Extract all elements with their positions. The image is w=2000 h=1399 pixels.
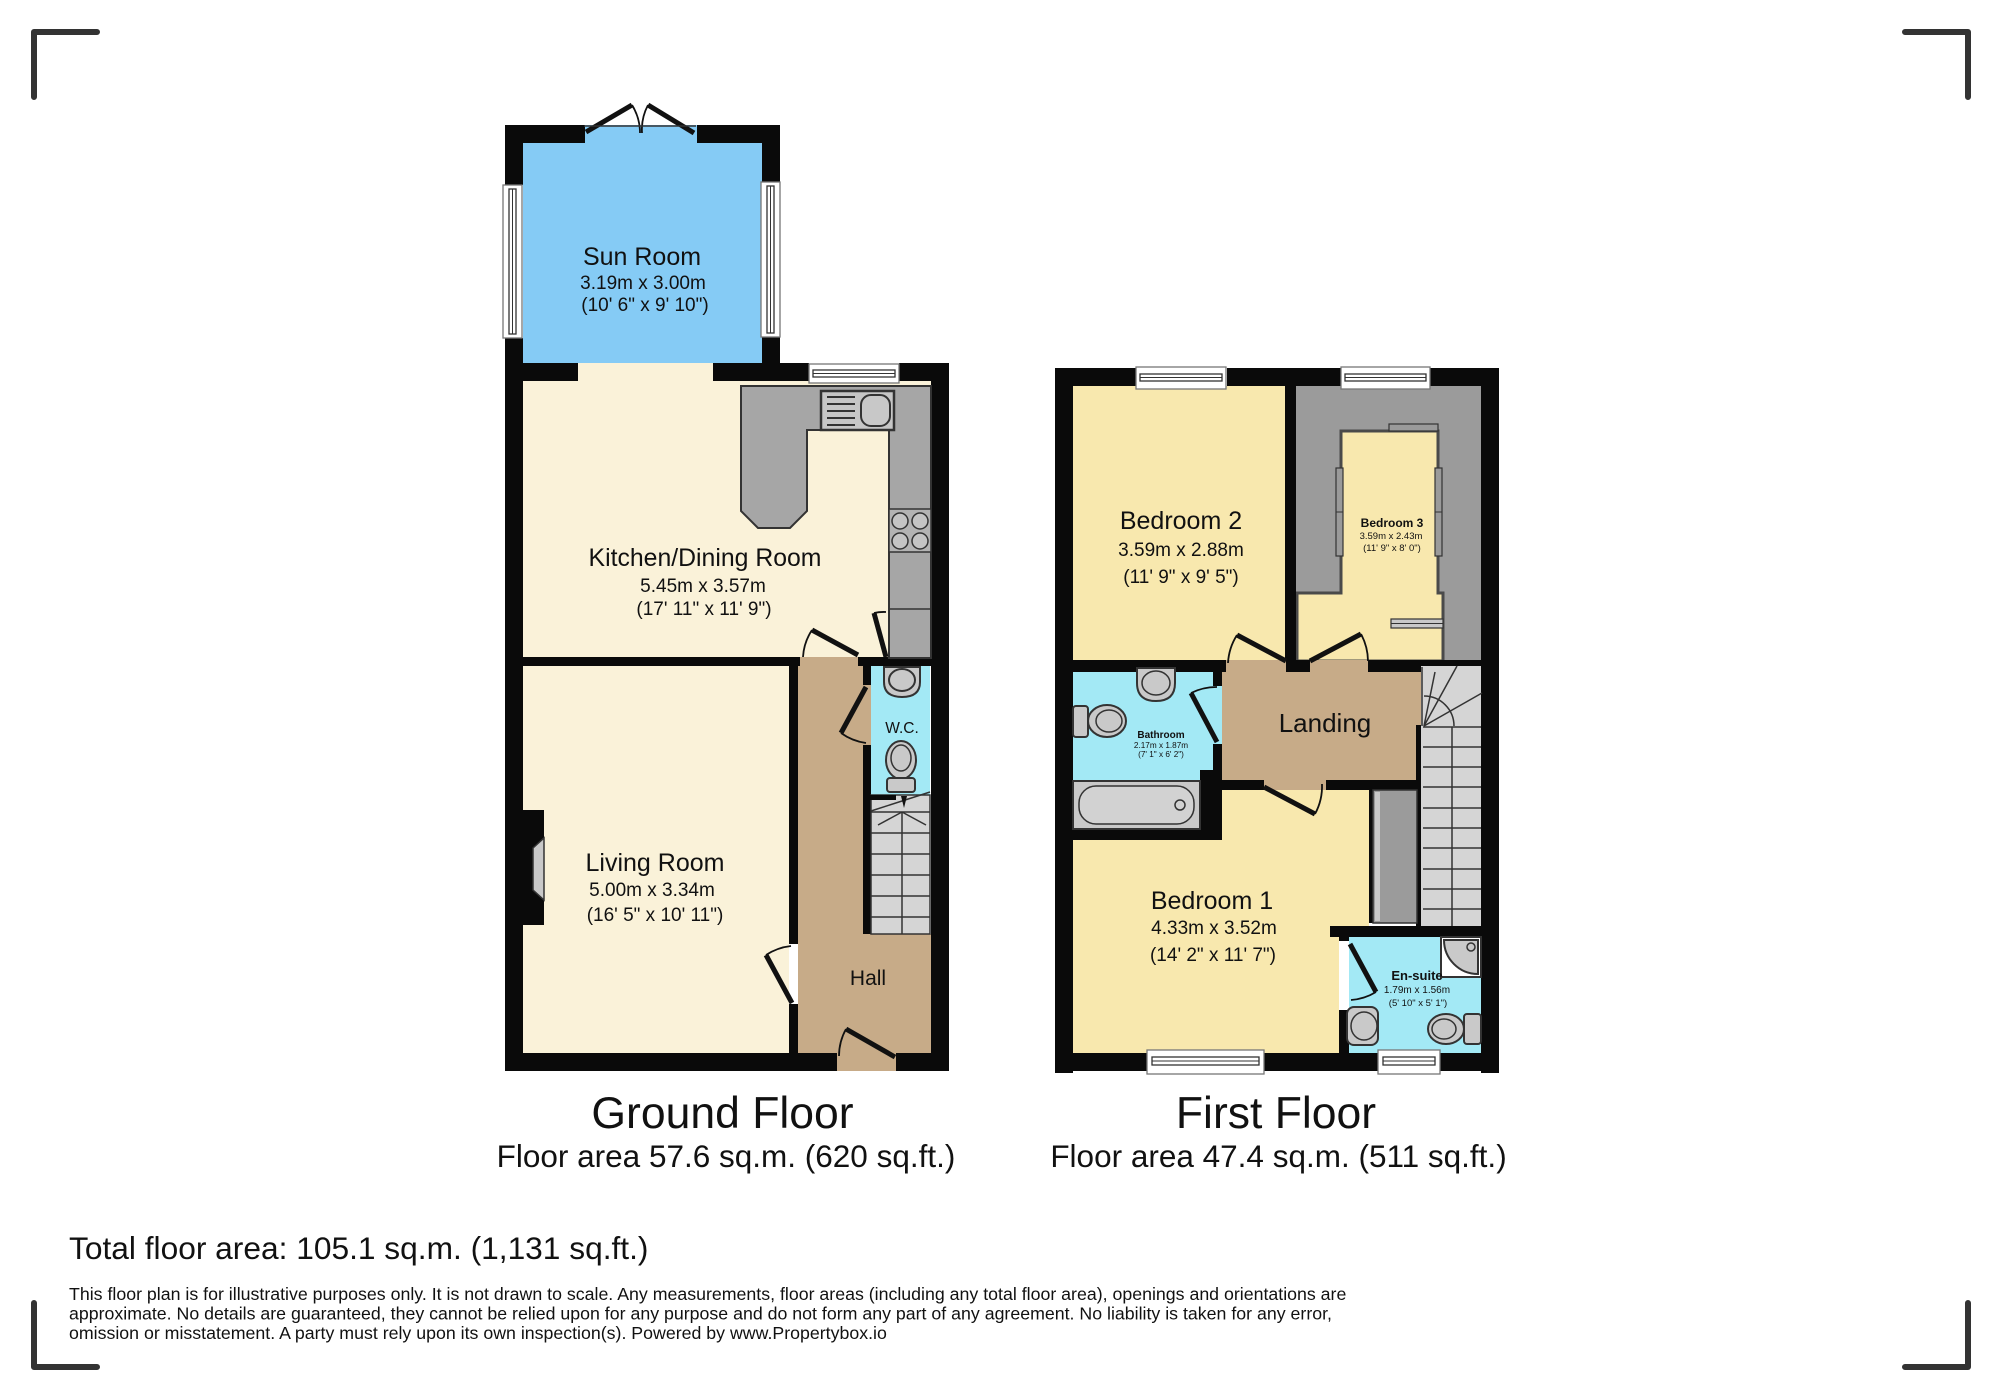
svg-text:Hall: Hall xyxy=(850,967,886,990)
svg-text:5.45m x 3.57m: 5.45m x 3.57m xyxy=(640,576,766,597)
svg-text:(5' 10" x 5' 1"): (5' 10" x 5' 1") xyxy=(1389,998,1447,1009)
svg-text:5.00m x 3.34m: 5.00m x 3.34m xyxy=(589,880,715,901)
svg-text:Bedroom 1: Bedroom 1 xyxy=(1151,887,1273,915)
svg-text:Bedroom 2: Bedroom 2 xyxy=(1120,507,1242,535)
svg-text:2.17m x 1.87m: 2.17m x 1.87m xyxy=(1134,741,1188,750)
svg-text:Living Room: Living Room xyxy=(586,849,725,877)
svg-text:(7' 1" x 6' 2"): (7' 1" x 6' 2") xyxy=(1138,750,1184,759)
svg-text:(11' 9" x 8' 0"): (11' 9" x 8' 0") xyxy=(1363,543,1421,554)
svg-text:Total floor area: 105.1 sq.m.: Total floor area: 105.1 sq.m. (1,131 sq.… xyxy=(69,1230,648,1266)
svg-text:Bathroom: Bathroom xyxy=(1137,730,1184,741)
svg-text:W.C.: W.C. xyxy=(885,720,919,737)
svg-text:En-suite: En-suite xyxy=(1391,968,1442,983)
svg-text:3.19m x 3.00m: 3.19m x 3.00m xyxy=(580,273,706,294)
svg-text:Bedroom 3: Bedroom 3 xyxy=(1361,516,1424,530)
svg-text:Floor area 47.4 sq.m. (511 sq.: Floor area 47.4 sq.m. (511 sq.ft.) xyxy=(1050,1138,1506,1174)
svg-text:This floor plan is for illustr: This floor plan is for illustrative purp… xyxy=(69,1284,1346,1304)
svg-text:(10' 6" x 9' 10"): (10' 6" x 9' 10") xyxy=(581,295,708,316)
svg-text:3.59m x 2.88m: 3.59m x 2.88m xyxy=(1118,540,1244,561)
svg-text:(11' 9" x 9' 5"): (11' 9" x 9' 5") xyxy=(1123,567,1238,588)
svg-text:omission or misstatement. A pa: omission or misstatement. A party must r… xyxy=(69,1323,887,1343)
svg-text:(14' 2" x 11' 7"): (14' 2" x 11' 7") xyxy=(1150,945,1276,966)
svg-text:First Floor: First Floor xyxy=(1176,1089,1376,1138)
svg-text:Ground Floor: Ground Floor xyxy=(591,1089,853,1138)
svg-text:Sun Room: Sun Room xyxy=(583,243,701,271)
svg-text:3.59m x 2.43m: 3.59m x 2.43m xyxy=(1360,531,1423,542)
svg-text:approximate. No details are gu: approximate. No details are guaranteed, … xyxy=(69,1304,1332,1324)
svg-text:Kitchen/Dining Room: Kitchen/Dining Room xyxy=(589,545,822,572)
svg-text:Floor area 57.6 sq.m. (620 sq.: Floor area 57.6 sq.m. (620 sq.ft.) xyxy=(497,1138,956,1174)
svg-text:(16' 5" x 10' 11"): (16' 5" x 10' 11") xyxy=(587,905,724,926)
svg-text:(17' 11" x 11' 9"): (17' 11" x 11' 9") xyxy=(636,599,771,620)
svg-text:Landing: Landing xyxy=(1279,708,1372,738)
svg-text:4.33m x 3.52m: 4.33m x 3.52m xyxy=(1151,918,1277,939)
svg-text:1.79m x 1.56m: 1.79m x 1.56m xyxy=(1384,985,1450,996)
